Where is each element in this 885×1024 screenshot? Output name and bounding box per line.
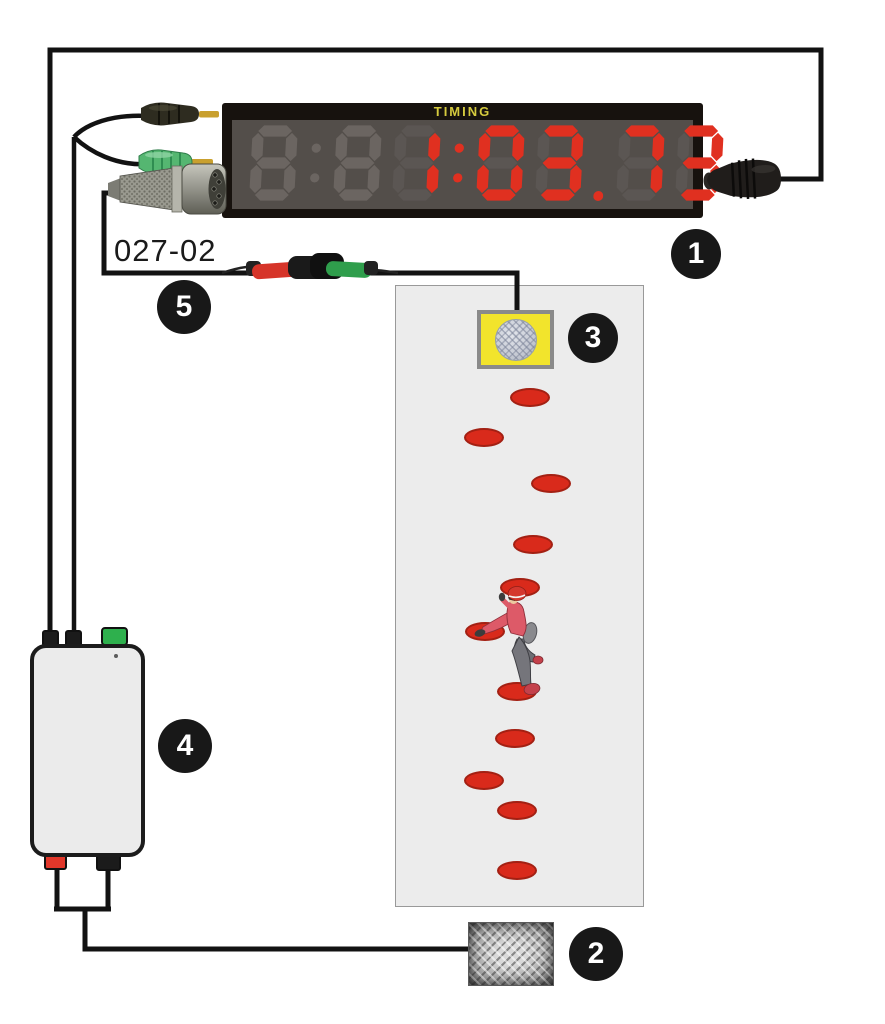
din-connector-icon bbox=[98, 160, 232, 218]
start-button bbox=[477, 310, 554, 369]
display-slot bbox=[391, 122, 442, 204]
callout-3: 3 bbox=[568, 313, 618, 363]
callout-5-number: 5 bbox=[176, 290, 193, 324]
cable-code-label: 027-02 bbox=[114, 233, 217, 269]
cable-box-to-finish-pad bbox=[54, 866, 470, 949]
display-slot bbox=[534, 122, 585, 204]
display-digits bbox=[250, 122, 723, 204]
display-slot bbox=[332, 122, 383, 204]
banana-plug-black-icon bbox=[133, 98, 225, 130]
display-slot bbox=[593, 122, 607, 204]
timing-display: TIMING bbox=[222, 103, 703, 218]
callout-4: 4 bbox=[158, 719, 212, 773]
start-button-mesh bbox=[495, 319, 537, 361]
display-slot bbox=[307, 122, 324, 204]
display-slot bbox=[248, 122, 299, 204]
callout-2: 2 bbox=[569, 927, 623, 981]
timing-system-diagram: TIMING bbox=[0, 0, 885, 1024]
timing-brand-label: TIMING bbox=[222, 104, 703, 119]
power-plug-icon bbox=[699, 153, 793, 206]
control-box bbox=[30, 644, 145, 857]
climber-illustration bbox=[453, 563, 565, 711]
callout-1-number: 1 bbox=[688, 237, 705, 271]
finish-pad bbox=[468, 922, 554, 986]
display-screen bbox=[232, 120, 693, 209]
callout-5: 5 bbox=[157, 280, 211, 334]
callout-4-number: 4 bbox=[177, 729, 194, 763]
display-slot bbox=[450, 122, 467, 204]
callout-3-number: 3 bbox=[585, 321, 602, 355]
display-slot bbox=[475, 122, 526, 204]
box-indicator-dot bbox=[114, 654, 118, 658]
callout-1: 1 bbox=[671, 229, 721, 279]
callout-2-number: 2 bbox=[588, 937, 605, 971]
display-slot bbox=[615, 122, 666, 204]
alligator-clips-icon bbox=[222, 248, 398, 288]
